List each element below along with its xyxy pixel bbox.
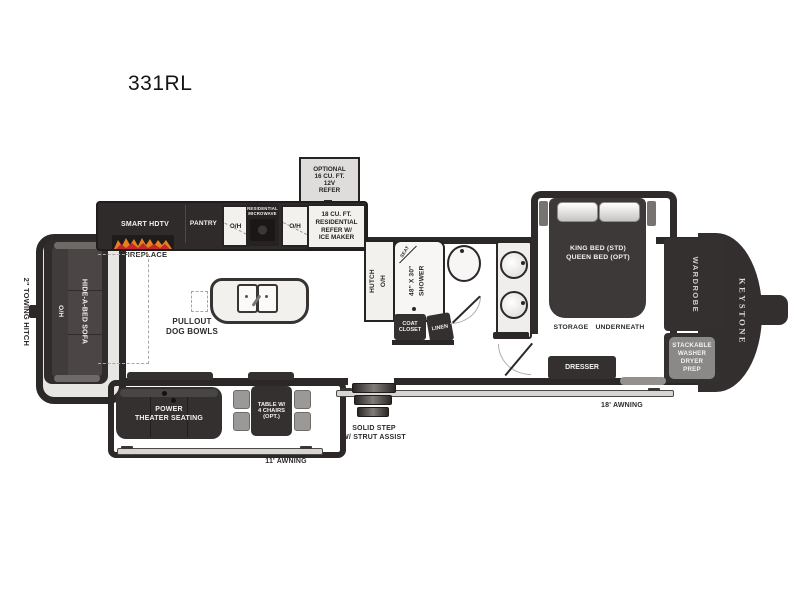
sofa-armrest-bottom — [54, 375, 100, 382]
awning-11-bar — [117, 448, 323, 455]
range-icon — [250, 219, 275, 241]
slide-travel-outline — [98, 254, 149, 364]
floorplan-331rl: 331RL OPTIONAL 16 CU. FT. 12V REFER O/H … — [0, 0, 800, 600]
fireplace-flame-icon — [112, 235, 174, 250]
keystone-logo: KEYSTONE — [736, 271, 747, 353]
vanity-faucet-bottom — [521, 301, 525, 305]
bath-bottom-wall — [392, 340, 454, 345]
shower-label: 48" X 30" SHOWER — [407, 246, 427, 316]
sink-drain-right — [265, 295, 268, 298]
smart-hdtv-label: SMART HDTV — [104, 220, 186, 229]
sofa-oh-label: O/H — [56, 296, 64, 326]
pillow-right — [599, 202, 640, 222]
dinette-table: TABLE W/ 4 CHAIRS (OPT.) — [251, 386, 292, 436]
awning-11-cap-right — [300, 446, 312, 449]
toilet-flush-dot — [460, 249, 464, 253]
coat-closet-box: COAT CLOSET — [394, 314, 426, 340]
awning-11-label: 11' AWNING — [250, 457, 322, 466]
vanity-faucet-top — [521, 261, 525, 265]
shower-valve-dot — [412, 307, 416, 311]
awning-18-cap-left — [340, 388, 352, 391]
hitch-pin — [754, 295, 788, 325]
dog-bowl-outline — [191, 291, 208, 312]
sink-drain-left — [245, 295, 248, 298]
toilet-icon — [447, 245, 481, 282]
cupholder-right-icon — [171, 398, 176, 403]
step-3 — [357, 407, 389, 417]
stackable-prep-box: STACKABLE WASHER DRYER PREP — [669, 337, 715, 379]
storage-underneath-label: STORAGE UNDERNEATH — [540, 324, 658, 333]
bed-label: KING BED (STD) QUEEN BED (OPT) — [556, 245, 640, 263]
theater-label: POWER THEATER SEATING — [118, 405, 220, 423]
stackable-label: STACKABLE WASHER DRYER PREP — [672, 342, 712, 374]
fireplace-box — [112, 235, 174, 250]
wardrobe-label: WARDROBE — [690, 242, 700, 328]
vanity-sink-top — [500, 251, 528, 279]
solid-step-label: SOLID STEP W/ STRUT ASSIST — [328, 424, 420, 442]
overhead-cabinet-1: O/H — [222, 205, 249, 247]
hutch-label: HUTCH O/H — [367, 246, 389, 316]
bedroom-exterior-step — [620, 377, 666, 385]
linen-label: LINEN — [431, 324, 448, 333]
dresser-label: DRESSER — [565, 364, 599, 371]
awning-11-cap-left — [121, 446, 133, 449]
theater-seating: POWER THEATER SEATING — [116, 387, 222, 439]
pillow-left — [557, 202, 598, 222]
dresser-box: DRESSER — [548, 356, 616, 379]
dinette-chair-2 — [233, 412, 250, 431]
table-label: TABLE W/ 4 CHAIRS (OPT.) — [258, 402, 286, 420]
optional-refer-box: OPTIONAL 16 CU. FT. 12V REFER — [299, 157, 360, 203]
sofa-armrest-top — [54, 242, 100, 249]
step-1 — [352, 383, 396, 393]
awning-18-label: 18' AWNING — [586, 401, 658, 410]
table-back-inside — [248, 372, 294, 380]
dinette-chair-4 — [294, 412, 311, 431]
theater-seat-back-inside — [127, 372, 213, 380]
coat-closet-label: COAT CLOSET — [399, 321, 421, 333]
step-2 — [354, 395, 392, 405]
nightstand-right — [647, 201, 656, 226]
dinette-chair-1 — [233, 390, 250, 409]
cupholder-left-icon — [162, 391, 167, 396]
island-sink — [237, 284, 277, 311]
entry-steps — [352, 383, 394, 419]
vanity-end-wall — [493, 332, 529, 339]
towing-hitch-label: 2" TOWING HITCH — [21, 257, 31, 367]
pantry-label: PANTRY — [186, 220, 221, 228]
optional-refer-label: OPTIONAL 16 CU. FT. 12V REFER — [313, 166, 346, 194]
sink-basin-right — [257, 284, 278, 313]
theater-armbar — [120, 389, 218, 397]
nightstand-left — [539, 201, 548, 226]
overhead-cabinet-2: O/H — [281, 205, 309, 247]
page-title: 331RL — [128, 70, 208, 97]
microwave-range: RESIDENTIAL MICROWAVE — [246, 204, 279, 246]
refer-label: 18 CU. FT. RESIDENTIAL REFER W/ ICE MAKE… — [316, 211, 358, 242]
vanity-sink-bottom — [500, 291, 528, 319]
sofa-label: HIDE-A-BED SOFA — [79, 260, 88, 364]
refer-box: 18 CU. FT. RESIDENTIAL REFER W/ ICE MAKE… — [307, 204, 366, 249]
awning-18-cap-right — [648, 388, 660, 391]
microwave-label: RESIDENTIAL MICROWAVE — [246, 206, 279, 217]
dinette-chair-3 — [294, 390, 311, 409]
